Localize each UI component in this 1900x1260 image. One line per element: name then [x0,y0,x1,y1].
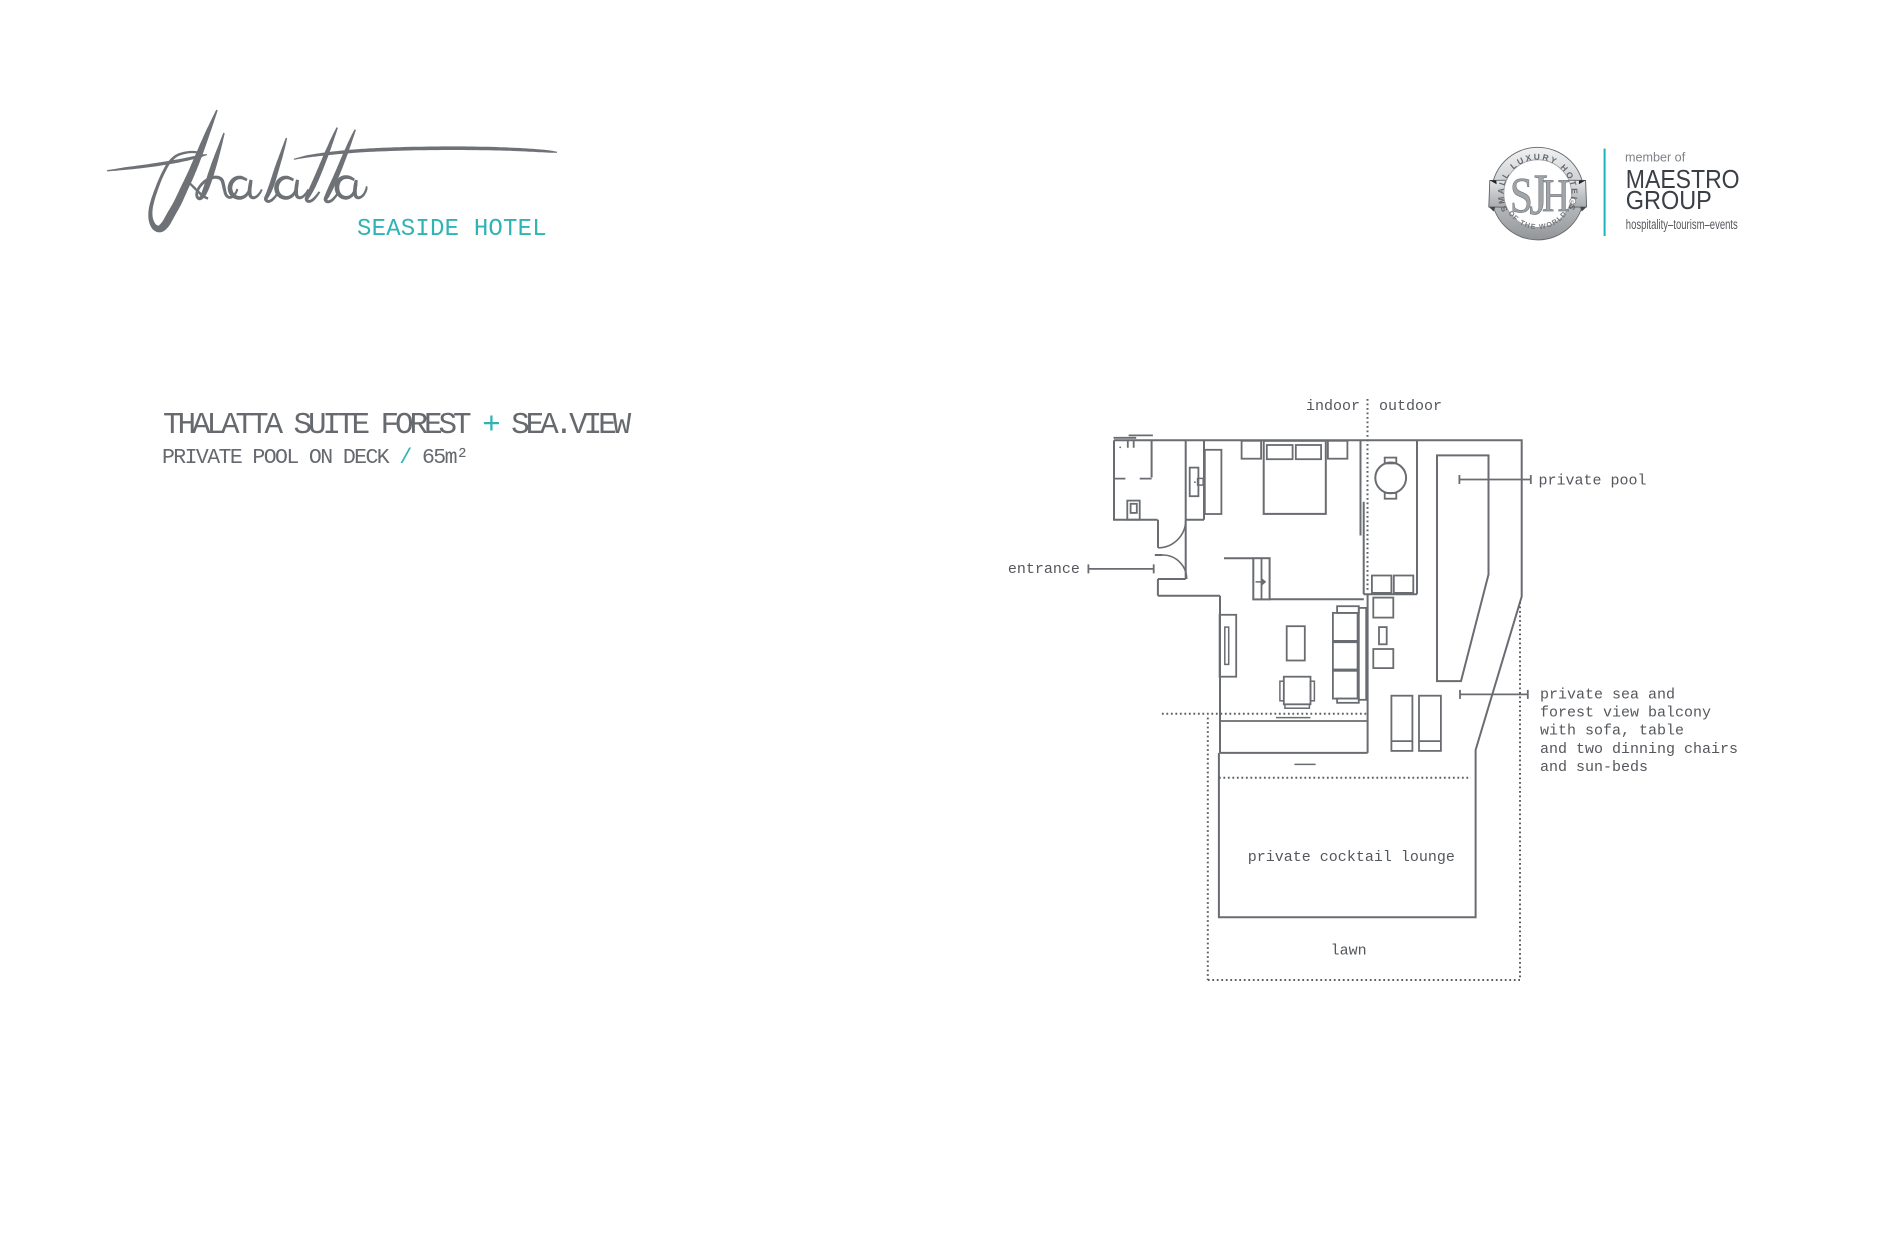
svg-text:and sun-beds: and sun-beds [1540,759,1648,776]
svg-text:private pool: private pool [1539,472,1647,489]
svg-text:private sea and: private sea and [1540,687,1675,704]
svg-text:hospitality–tourism–events: hospitality–tourism–events [1626,217,1738,232]
svg-text:private cocktail lounge: private cocktail lounge [1248,849,1455,866]
svg-text:with sofa, table: with sofa, table [1540,723,1684,740]
svg-text:lawn: lawn [1331,943,1367,960]
svg-text:outdoor: outdoor [1379,398,1442,415]
svg-text:indoor: indoor [1306,398,1360,415]
svg-text:GROUP: GROUP [1626,185,1712,215]
svg-text:R: R [1571,199,1574,204]
svg-text:J: J [1529,164,1548,227]
svg-text:entrance: entrance [1008,561,1080,578]
svg-text:forest view balcony: forest view balcony [1540,705,1711,722]
svg-text:member of: member of [1625,151,1686,165]
svg-text:and two dinning chairs: and two dinning chairs [1540,741,1738,758]
